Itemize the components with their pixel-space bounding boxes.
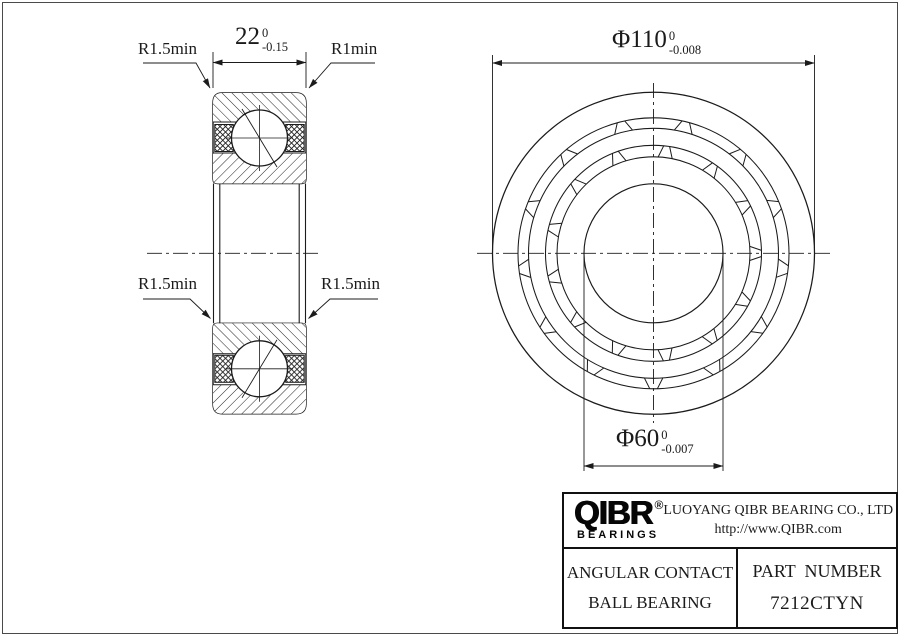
part-number-value: 7212CTYN xyxy=(770,593,864,615)
cross-section-view xyxy=(143,52,378,414)
brand-name: QIBR xyxy=(574,497,653,528)
front-view xyxy=(477,55,831,471)
outer-dia-value: Φ110 xyxy=(612,27,667,53)
title-block-header-row: QIBR ® BEARINGS LUOYANG QIBR BEARING CO.… xyxy=(564,494,896,549)
brand-logo: QIBR ® BEARINGS xyxy=(564,494,663,547)
part-number-cell: PART NUMBER 7212CTYN xyxy=(738,549,896,627)
width-tolerance: 0 -0.15 xyxy=(262,26,288,54)
bore-dia-tolerance: 0 -0.007 xyxy=(661,428,693,456)
width-dimension xyxy=(213,52,306,88)
product-type-cell: ANGULAR CONTACT BALL BEARING xyxy=(564,549,738,627)
outer-dia-text: Φ110 0 -0.008 xyxy=(612,27,701,55)
company-name: LUOYANG QIBR BEARING CO., LTD xyxy=(663,503,893,519)
product-type-line1: ANGULAR CONTACT xyxy=(567,563,733,583)
bearing-section-top xyxy=(213,93,306,184)
part-number-label: PART NUMBER xyxy=(753,561,882,582)
title-block: QIBR ® BEARINGS LUOYANG QIBR BEARING CO.… xyxy=(562,492,898,629)
radius-label-top-right: R1min xyxy=(331,39,377,59)
radius-label-top-left: R1.5min xyxy=(138,39,197,59)
radius-label-mid-left: R1.5min xyxy=(138,274,197,294)
bore-dia-text: Φ60 0 -0.007 xyxy=(616,426,694,454)
bore-dia-value: Φ60 xyxy=(616,426,659,452)
product-type-line2: BALL BEARING xyxy=(588,593,712,613)
company-website: http://www.QIBR.com xyxy=(714,522,841,538)
bearing-section-bottom xyxy=(213,323,306,414)
brand-subtext: BEARINGS xyxy=(577,529,663,541)
outer-dia-tolerance: 0 -0.008 xyxy=(669,29,701,57)
title-block-bottom-row: ANGULAR CONTACT BALL BEARING PART NUMBER… xyxy=(564,549,896,627)
drawing-sheet: R1.5min 22 0 -0.15 R1min R1.5min R1.5min… xyxy=(0,0,900,636)
company-info: LUOYANG QIBR BEARING CO., LTD http://www… xyxy=(663,494,897,547)
width-dimension-text: 22 0 -0.15 xyxy=(235,24,288,52)
width-value: 22 xyxy=(235,24,260,50)
radius-label-mid-right: R1.5min xyxy=(321,274,380,294)
registered-trademark-icon: ® xyxy=(655,498,664,512)
